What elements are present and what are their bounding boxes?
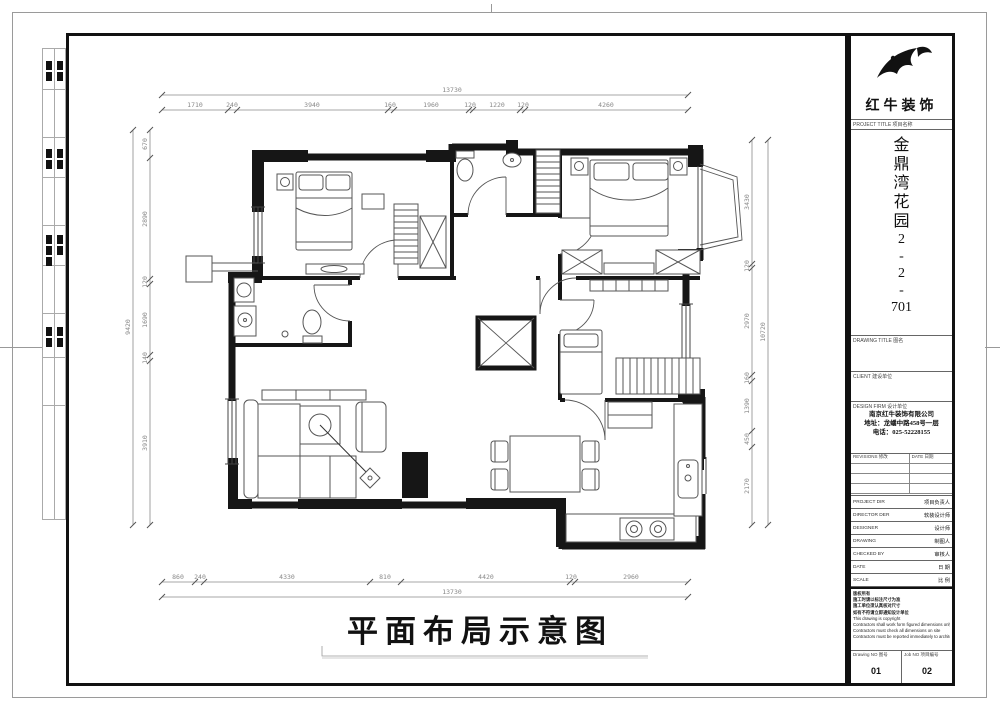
notes-section: 版权所有 施工时请以标注尺寸为准 施工单位须认真核对尺寸 如有不符请立即通知设计… bbox=[851, 587, 952, 651]
kitchen-sink bbox=[678, 460, 698, 498]
job-no-value: 02 bbox=[904, 666, 950, 676]
dim-value: 450 bbox=[743, 433, 751, 445]
nightstand bbox=[571, 158, 588, 175]
dim-value: 4420 bbox=[478, 573, 494, 581]
closet-shelves bbox=[536, 150, 560, 213]
window-bedroom1-left bbox=[251, 207, 265, 263]
dim-value: 3940 bbox=[304, 101, 320, 109]
dim-value: 670 bbox=[141, 138, 149, 150]
door-bath1 bbox=[468, 177, 506, 215]
project-name-char: 701 bbox=[851, 299, 952, 316]
dim-value: 240 bbox=[226, 101, 238, 109]
tb-row-project-dir: PROJECT DIR项目负责人 bbox=[851, 496, 952, 509]
shelf-study bbox=[616, 358, 700, 394]
revisions-table: REVISIONS 修改 DATE 日期 bbox=[851, 454, 952, 496]
dim-total: 13730 bbox=[442, 86, 462, 94]
bay-window-master bbox=[698, 164, 742, 250]
client-section: CLIENT 建设单位 bbox=[851, 372, 952, 402]
dining-chair bbox=[582, 441, 599, 462]
window-living-left bbox=[225, 399, 239, 464]
tb-row-date: DATE日 期 bbox=[851, 561, 952, 574]
revisions-header: REVISIONS 修改 bbox=[851, 454, 910, 464]
door-bedroom1 bbox=[360, 240, 398, 278]
tb-row-scale: SCALE比 例 bbox=[851, 574, 952, 587]
project-title-label: PROJECT TITLE 项目名称 bbox=[851, 120, 952, 130]
drawing-no-value: 01 bbox=[853, 666, 899, 676]
firm-phone: 电话：025-52228155 bbox=[851, 428, 952, 437]
caption-group: 平面布局示意图 bbox=[322, 614, 648, 658]
dim-value: 1710 bbox=[187, 101, 203, 109]
tv-wall-stub bbox=[402, 452, 428, 498]
dim-total: 9420 bbox=[124, 319, 132, 335]
dim-value: 4260 bbox=[598, 101, 614, 109]
project-name-char: 花 bbox=[851, 193, 952, 212]
drawing-sheet: { "sheet": { "caption": "平面布局示意图" }, "ti… bbox=[0, 0, 1000, 710]
project-name: 金 鼎 湾 花 园 2 - 2 - 701 bbox=[851, 130, 952, 336]
company-name: 红牛装饰 bbox=[851, 95, 952, 115]
dim-value: 4330 bbox=[279, 573, 295, 581]
dining-chair bbox=[491, 469, 508, 490]
dim-value: 2170 bbox=[743, 478, 751, 494]
drawing-number-section: Drawing NO 图号 01 Job NO 项目编号 02 bbox=[851, 651, 952, 683]
date-header: DATE 日期 bbox=[910, 454, 952, 464]
project-name-char: - bbox=[851, 248, 952, 265]
dining-chair bbox=[582, 469, 599, 490]
vanity-console bbox=[306, 264, 364, 274]
dim-total: 13730 bbox=[442, 588, 462, 596]
dim-value: 120 bbox=[141, 276, 149, 288]
tb-row-checked-by: CHECKED BY审核人 bbox=[851, 548, 952, 561]
toilet-bath2 bbox=[303, 310, 322, 343]
dim-value: 160 bbox=[743, 372, 751, 384]
drawing-no-cell: Drawing NO 图号 01 bbox=[851, 651, 902, 683]
project-name-char: 鼎 bbox=[851, 155, 952, 174]
toilet-bath1 bbox=[456, 151, 474, 181]
tb-row-director: DIRECTOR DER软装设计师 bbox=[851, 509, 952, 522]
dim-value: 120 bbox=[565, 573, 577, 581]
door-study bbox=[560, 300, 594, 334]
drawing-caption: 平面布局示意图 bbox=[347, 614, 613, 649]
dim-value: 120 bbox=[743, 260, 751, 272]
wardrobe-bedroom1 bbox=[394, 204, 418, 264]
dim-value: 160 bbox=[384, 101, 396, 109]
project-name-char: 湾 bbox=[851, 174, 952, 193]
bed-bedroom1 bbox=[296, 172, 352, 250]
dim-value: 1390 bbox=[743, 398, 751, 414]
firm-address: 地址：龙蟠中路458号一层 bbox=[851, 419, 952, 428]
dim-value: 860 bbox=[172, 573, 184, 581]
floor-drain bbox=[282, 331, 288, 337]
job-no-cell: Job NO 项目编号 02 bbox=[902, 651, 952, 683]
design-firm-section: DESIGN FIRM 设计单位 南京红牛装饰有限公司 地址：龙蟠中路458号一… bbox=[851, 402, 952, 454]
project-name-char: 园 bbox=[851, 212, 952, 231]
dining-table bbox=[510, 436, 580, 492]
dim-value: 2970 bbox=[743, 313, 751, 329]
dim-value: 810 bbox=[379, 573, 391, 581]
dining-chair bbox=[491, 441, 508, 462]
bed-study bbox=[560, 330, 602, 394]
dim-value: 140 bbox=[141, 352, 149, 364]
nightstand bbox=[277, 174, 293, 190]
drawing-title-section: DRAWING TITLE 图名 bbox=[851, 336, 952, 372]
sink-bath1 bbox=[503, 153, 521, 167]
project-name-char: 2 bbox=[851, 265, 952, 282]
vanity-bath2 bbox=[234, 306, 256, 336]
dim-total: 10720 bbox=[759, 322, 767, 342]
shoe-cabinet bbox=[590, 280, 668, 291]
dim-value: 2960 bbox=[623, 573, 639, 581]
door-kitchen bbox=[565, 400, 605, 440]
firm-name: 南京红牛装饰有限公司 bbox=[851, 410, 952, 419]
washer-bath2 bbox=[234, 278, 254, 302]
stove bbox=[620, 518, 674, 540]
title-block: 红牛装饰 PROJECT TITLE 项目名称 金 鼎 湾 花 园 2 - 2 … bbox=[845, 33, 955, 686]
hall-closet bbox=[420, 216, 446, 268]
dim-value: 120 bbox=[464, 101, 476, 109]
tb-row-drawing: DRAWING制图人 bbox=[851, 535, 952, 548]
dim-value: 1960 bbox=[423, 101, 439, 109]
wardrobe-master bbox=[562, 250, 700, 274]
project-name-char: - bbox=[851, 282, 952, 299]
dim-value: 240 bbox=[194, 573, 206, 581]
dim-value: 2890 bbox=[141, 211, 149, 227]
company-logo-section: 红牛装饰 bbox=[851, 36, 952, 120]
dim-value: 1220 bbox=[489, 101, 505, 109]
dim-value: 3910 bbox=[141, 435, 149, 451]
project-name-char: 2 bbox=[851, 231, 952, 248]
tv-console bbox=[262, 390, 366, 400]
dim-value: 1690 bbox=[141, 312, 149, 328]
dim-value: 3430 bbox=[743, 194, 751, 210]
bed-master bbox=[590, 160, 668, 236]
company-logo-icon bbox=[869, 40, 935, 90]
project-name-char: 金 bbox=[851, 136, 952, 155]
cabinet bbox=[362, 194, 384, 209]
fridge bbox=[608, 402, 652, 428]
dim-value: 120 bbox=[517, 101, 529, 109]
nightstand bbox=[670, 158, 687, 175]
armchair bbox=[356, 402, 386, 452]
tb-row-designer: DESIGNER设计师 bbox=[851, 522, 952, 535]
